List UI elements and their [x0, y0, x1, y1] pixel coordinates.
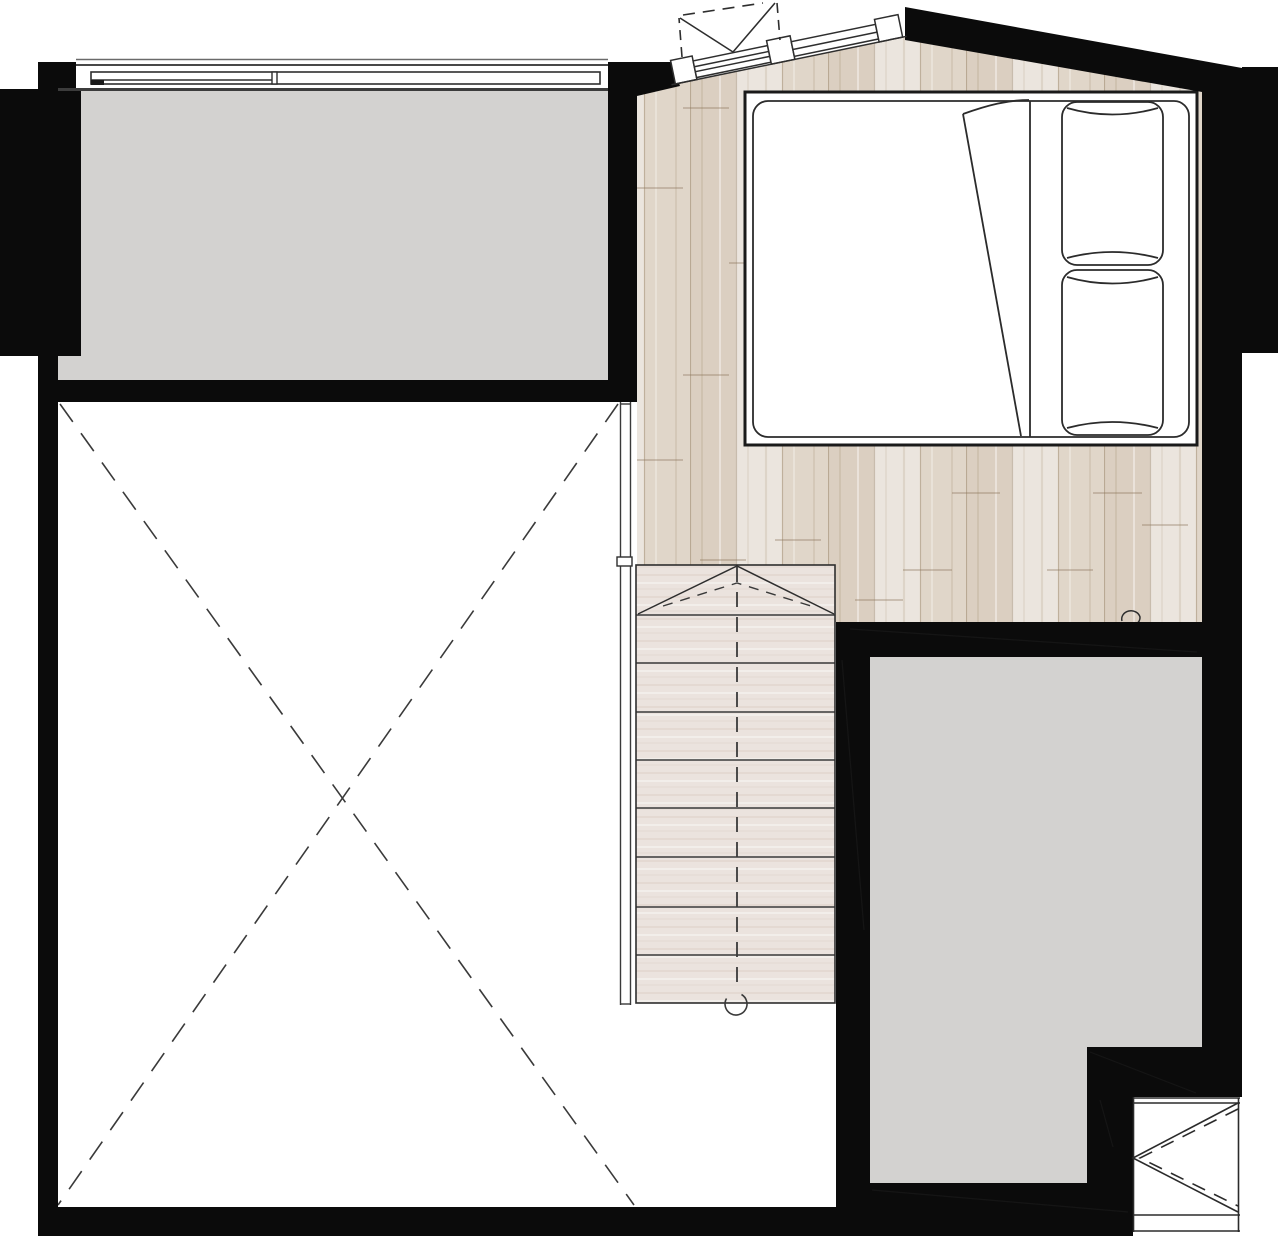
window-mullion: [272, 72, 277, 84]
wall-left: [38, 356, 58, 1236]
wall-gray-room-south: [38, 380, 637, 402]
floor-plan-page: [0, 0, 1280, 1238]
opening-bottom-right: [1133, 1097, 1240, 1233]
wall-bedroom-west: [608, 62, 637, 402]
wall-left-pier: [0, 89, 81, 356]
wall-stair-east: [836, 622, 870, 1236]
opening-void: [1133, 1097, 1240, 1233]
wall-right-pier: [1242, 67, 1278, 353]
floor-plan-drawing: [0, 0, 1280, 1238]
room-top-left: [58, 88, 608, 380]
wall-right: [1202, 80, 1242, 1097]
pillow-bottom: [1062, 270, 1163, 435]
double-bed: [745, 92, 1197, 445]
window-sash-marker: [91, 80, 104, 85]
railing-newel-post: [617, 557, 632, 566]
wall-bedroom-south: [836, 622, 1242, 657]
window-top-left: [58, 59, 608, 90]
staircase: [636, 565, 835, 1015]
stair-texture: [636, 565, 835, 1003]
wall-beside-door: [1087, 1097, 1133, 1236]
pillow-top: [1062, 102, 1163, 265]
wall-notch: [1087, 1047, 1242, 1097]
wall-top-left-corner: [38, 62, 78, 90]
window-glazing: [91, 72, 600, 84]
